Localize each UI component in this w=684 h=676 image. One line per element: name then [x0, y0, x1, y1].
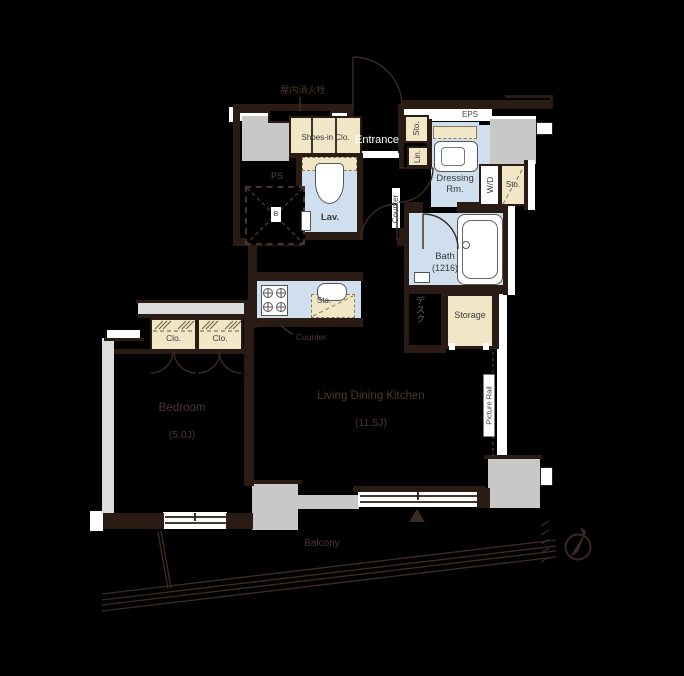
wall-segment	[244, 300, 254, 486]
picture-rail-label: Picture Rail	[484, 375, 495, 437]
wall-segment	[404, 294, 409, 346]
direction-triangle-icon	[409, 509, 425, 522]
wall-segment	[249, 272, 363, 281]
kitchen-stove	[261, 285, 288, 316]
dressing-shelf	[433, 126, 477, 139]
desk-label: デスク	[413, 296, 427, 342]
wall-segment	[404, 285, 506, 294]
wall-segment	[404, 213, 409, 288]
wall-segment	[136, 300, 250, 303]
wall-segment	[397, 238, 409, 246]
vanity-bowl	[441, 147, 465, 166]
wall-segment	[494, 294, 499, 349]
floor-plan-canvas: B	[0, 0, 684, 676]
washer-storage-label: Sto.	[500, 180, 526, 191]
wall-segment	[233, 104, 240, 245]
window-stub	[536, 122, 553, 135]
wall-segment	[477, 488, 490, 508]
wall-segment	[248, 480, 302, 484]
closet-right-label: Clo.	[200, 334, 240, 345]
dressing-room-label2: Rm.	[428, 185, 482, 196]
bathtub-inner	[462, 220, 498, 279]
balcony-label: Balcony	[294, 538, 350, 550]
bedroom-label: Bedroom	[146, 402, 218, 416]
bedroom-window	[163, 512, 227, 529]
ps-label: PS	[263, 171, 291, 183]
entrance-storage-label: Sto.	[411, 114, 422, 143]
washer-dryer-label: W/D	[484, 161, 496, 209]
north-compass-icon	[566, 527, 591, 560]
eps-label: EPS	[450, 110, 490, 121]
concrete-column	[490, 119, 536, 164]
door-pivot-notch	[449, 343, 455, 350]
wall-strip	[528, 160, 535, 210]
wall-segment	[353, 486, 485, 492]
dressing-room-floor	[479, 125, 490, 166]
bath-size-label: (1216)	[424, 263, 466, 274]
entrance-door-arc	[353, 57, 402, 106]
ldk-label: Living Dining Kitchen	[306, 390, 436, 404]
window-stub	[540, 467, 553, 486]
wall-strip	[497, 349, 507, 462]
concrete-column	[488, 458, 540, 508]
ldk-window	[358, 491, 479, 507]
bath-label: Bath	[426, 252, 464, 263]
kitchen-counter-label: Counter	[288, 332, 334, 343]
wall-segment	[252, 318, 363, 327]
lavatory-counter	[301, 211, 311, 231]
bedroom-left-wall	[102, 338, 114, 516]
wall-segment	[404, 202, 423, 213]
wall-segment	[550, 95, 553, 109]
closet-left-label: Clo.	[153, 334, 194, 345]
window-sill	[297, 495, 359, 509]
kitchen-storage-label: Sto.	[311, 296, 337, 306]
shoes-closet-label: Shoes-in Clo.	[289, 133, 362, 145]
counter-side-label: Counter	[391, 184, 401, 234]
fire-hydrant-label: 屋内消火栓	[258, 83, 348, 95]
wall-cap	[90, 511, 103, 531]
storage-label: Storage	[446, 310, 494, 322]
wall-strip	[508, 204, 515, 295]
door-pivot-notch	[483, 343, 489, 350]
wall-segment	[403, 100, 553, 109]
wall-segment	[399, 152, 404, 168]
wall-segment	[503, 204, 508, 295]
concrete-column	[252, 483, 298, 530]
bedroom-size-label: (5.0J)	[154, 429, 210, 442]
wall-segment	[484, 455, 542, 459]
linen-label: Lin.	[412, 142, 423, 171]
wall-segment	[357, 153, 363, 240]
wall-segment	[404, 345, 446, 353]
wall-segment	[103, 513, 164, 529]
wall-segment	[296, 232, 363, 240]
wall-strip	[499, 294, 507, 352]
shaft-mark-box: B	[271, 207, 281, 222]
wall-segment	[104, 338, 144, 341]
lavatory-label: Lav.	[312, 213, 348, 225]
ldk-size-label: (11.5J)	[344, 417, 398, 430]
wall-segment	[226, 513, 253, 529]
wall-segment	[505, 95, 553, 98]
toilet	[315, 163, 344, 204]
